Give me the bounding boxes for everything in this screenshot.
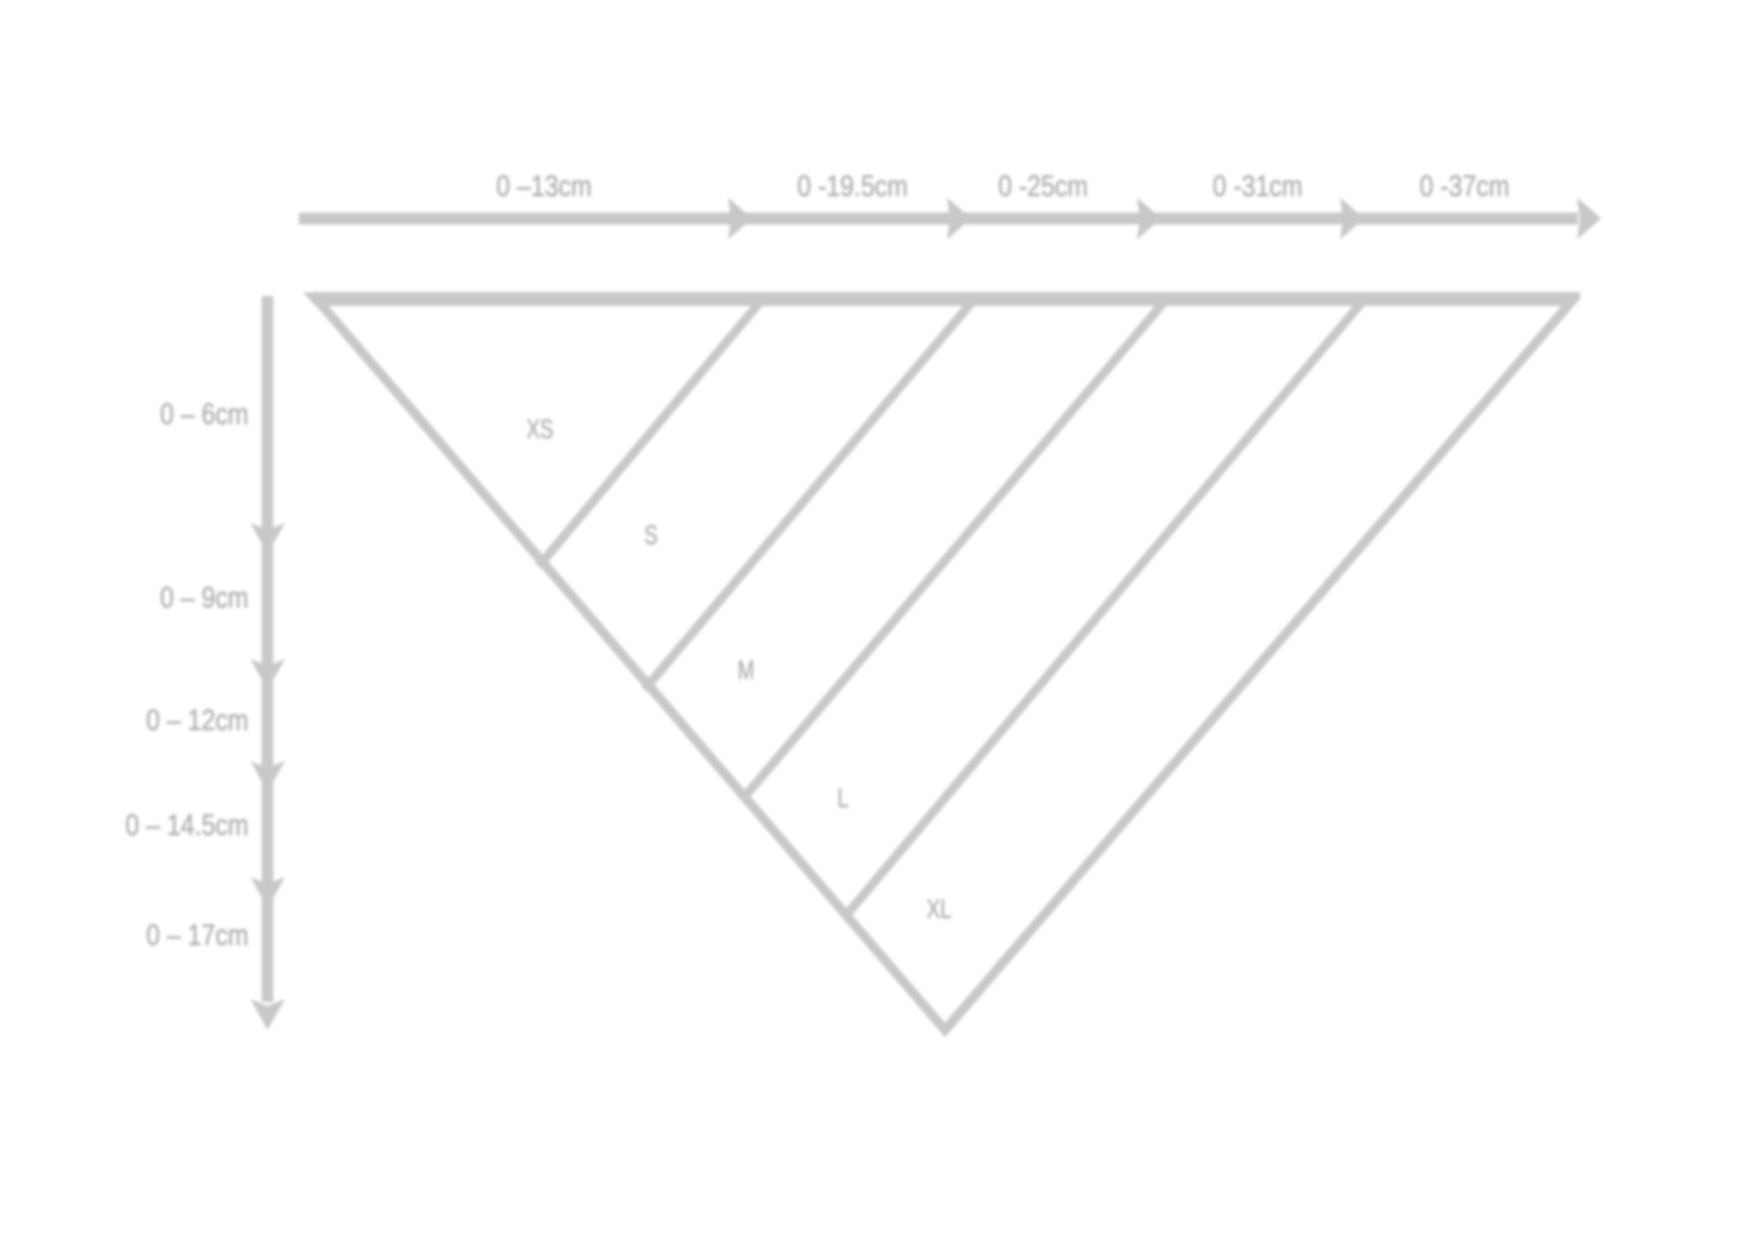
svg-text:0 – 6cm: 0 – 6cm [160, 397, 249, 431]
svg-text:0 -37cm: 0 -37cm [1420, 169, 1510, 203]
svg-text:0 -31cm: 0 -31cm [1213, 169, 1303, 203]
svg-text:0 – 12cm: 0 – 12cm [146, 703, 248, 737]
svg-text:XL: XL [927, 894, 952, 925]
svg-text:XS: XS [526, 414, 553, 445]
svg-text:S: S [644, 520, 658, 551]
svg-text:L: L [837, 783, 848, 814]
svg-text:0 – 17cm: 0 – 17cm [146, 918, 248, 952]
svg-text:0 – 9cm: 0 – 9cm [160, 580, 249, 614]
svg-text:0 -25cm: 0 -25cm [998, 169, 1088, 203]
svg-text:0 -19.5cm: 0 -19.5cm [797, 169, 908, 203]
svg-text:0 – 14.5cm: 0 – 14.5cm [125, 808, 248, 842]
svg-text:M: M [738, 655, 755, 686]
svg-text:0 –13cm: 0 –13cm [496, 169, 591, 203]
